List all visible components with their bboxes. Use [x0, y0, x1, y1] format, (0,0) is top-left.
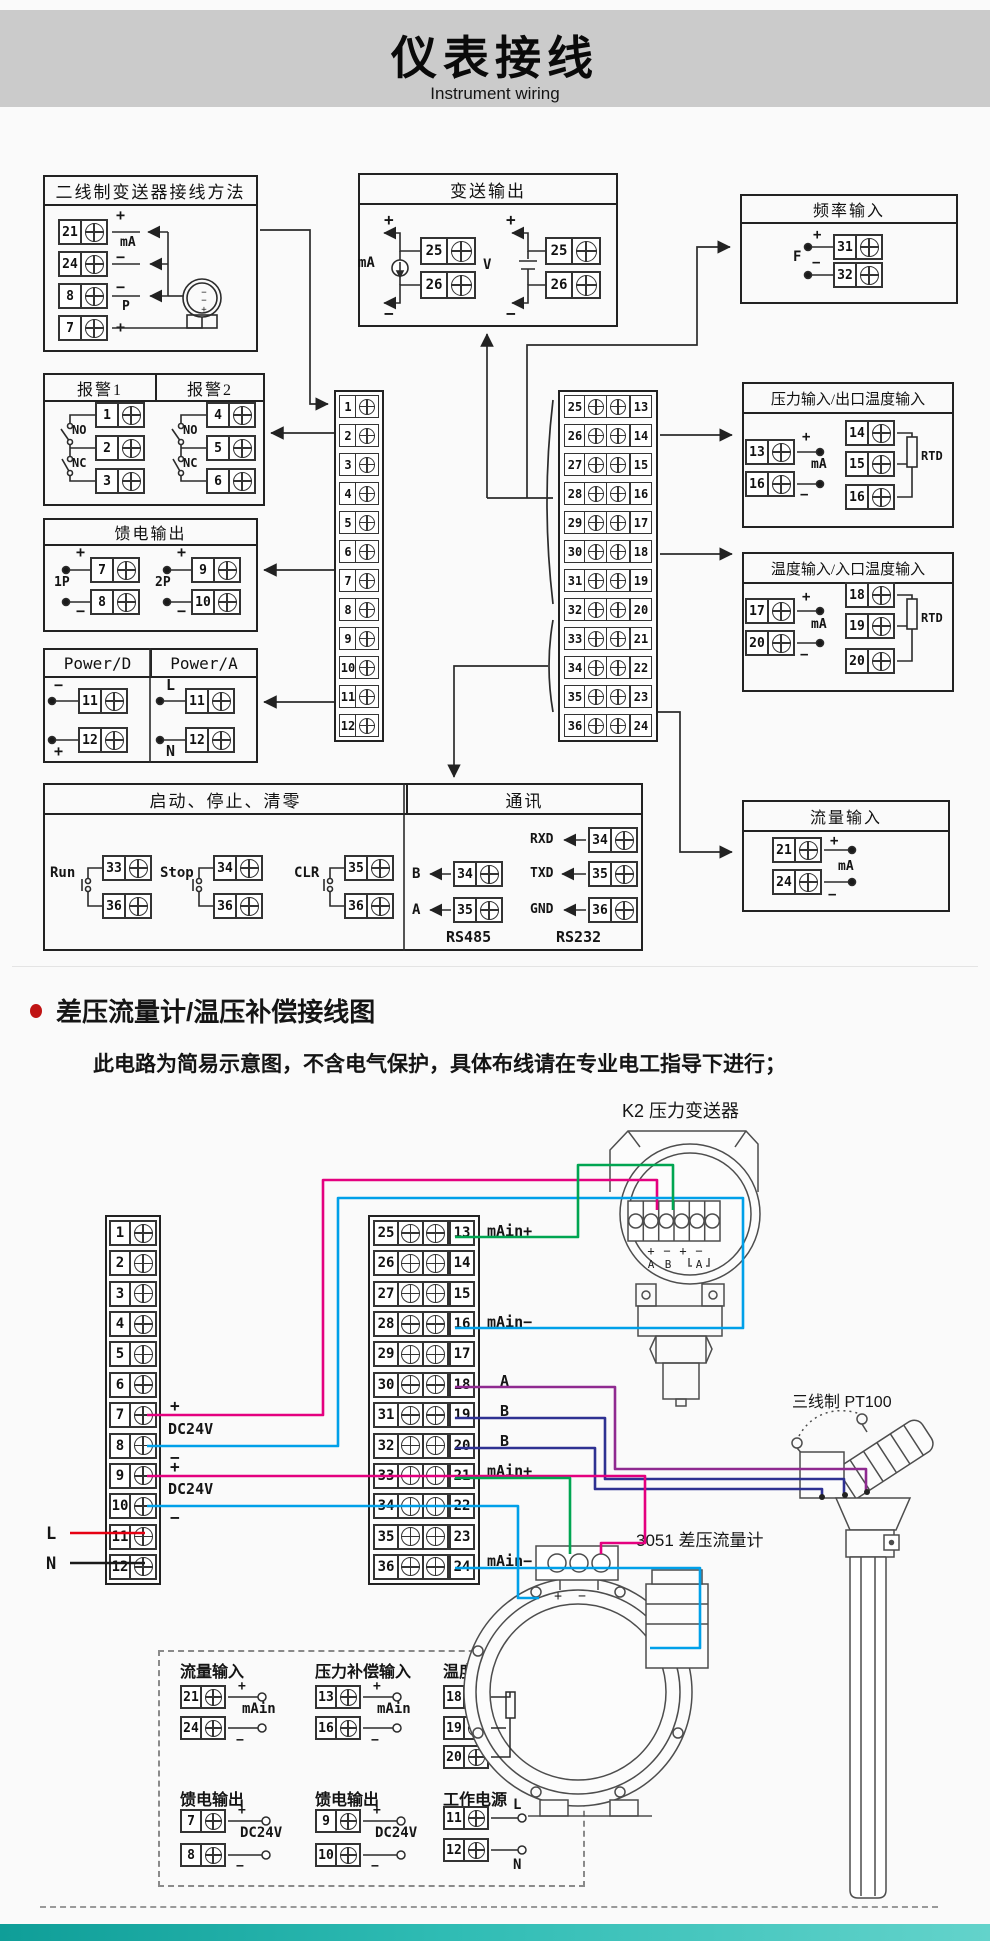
screw-terminal-icon: [200, 1809, 226, 1833]
screw-terminal-icon: [610, 897, 638, 923]
screw-terminal-icon: [767, 630, 795, 656]
terminal: 26: [545, 271, 601, 299]
box-title: 压力输入/出口温度输入: [744, 384, 952, 414]
screw-terminal-icon: [422, 1493, 449, 1519]
terminal-row: 3220: [562, 598, 654, 621]
label-plus: +: [802, 590, 810, 604]
terminal-row: 3523: [372, 1524, 476, 1550]
screw-terminal-icon: [355, 627, 379, 650]
terminal-row: 2917: [372, 1341, 476, 1367]
terminal: 9: [191, 557, 241, 583]
screw-terminal-icon: [335, 1843, 361, 1867]
screw-terminal-icon: [355, 540, 379, 563]
screw-terminal-icon: [606, 656, 630, 679]
group-title-feed2: 馈电输出: [315, 1786, 379, 1810]
terminal: 21: [772, 837, 822, 863]
screw-terminal-icon: [422, 1220, 449, 1246]
terminal-row: 5: [109, 1341, 157, 1367]
terminal-number: 29: [373, 1341, 399, 1367]
terminal-row: 8: [338, 598, 380, 621]
terminal: 4: [206, 402, 256, 428]
label-minus: −: [828, 888, 836, 902]
terminal-row: 2513: [562, 395, 654, 418]
screw-terminal-icon: [355, 685, 379, 708]
terminal: 11: [78, 688, 128, 714]
terminal-row: 3422: [372, 1493, 476, 1519]
terminal-row: 9: [338, 627, 380, 650]
terminal: 18: [845, 582, 895, 608]
screw-terminal-icon: [463, 1838, 489, 1862]
screw-terminal-icon: [397, 1372, 424, 1398]
label-n: N: [513, 1858, 521, 1872]
terminal: 12: [78, 727, 128, 753]
label-minus: −: [812, 256, 820, 270]
screw-terminal-icon: [422, 1524, 449, 1550]
label-minus: −: [170, 1510, 180, 1526]
terminal: 31: [833, 234, 883, 260]
terminal-number: 15: [449, 1281, 475, 1307]
label-plus: +: [76, 545, 85, 560]
terminal-number: 33: [564, 627, 586, 650]
terminal: 17: [745, 598, 795, 624]
group-title-feed1: 馈电输出: [180, 1786, 244, 1810]
label-ma: mA: [811, 618, 827, 631]
screw-terminal-icon: [463, 1806, 489, 1830]
label-p: P: [122, 300, 130, 313]
screw-terminal-icon: [80, 219, 108, 245]
terminal: 15: [845, 451, 895, 477]
terminal: 12: [185, 727, 235, 753]
terminal-number: 3: [109, 1281, 131, 1307]
terminal-number: 23: [449, 1524, 475, 1550]
screw-terminal-icon: [606, 598, 630, 621]
screw-terminal-icon: [606, 627, 630, 650]
label-rtd: RTD: [921, 612, 943, 624]
screw-terminal-icon: [112, 557, 140, 583]
screw-terminal-icon: [335, 1809, 361, 1833]
screw-terminal-icon: [794, 869, 822, 895]
screw-terminal-icon: [129, 1341, 157, 1367]
screw-terminal-icon: [397, 1250, 424, 1276]
label-main-plus: mAin+: [487, 1224, 532, 1239]
terminal-number: 35: [373, 1524, 399, 1550]
screw-terminal-icon: [584, 482, 608, 505]
terminal: 16: [315, 1716, 361, 1740]
screw-terminal-icon: [355, 598, 379, 621]
screw-terminal-icon: [606, 453, 630, 476]
terminal-number: 4: [109, 1311, 131, 1337]
terminal-number: 28: [373, 1311, 399, 1337]
label-plus: +: [116, 208, 125, 223]
box-title-power-d: Power/D: [45, 650, 150, 678]
terminal-number: 26: [564, 424, 586, 447]
terminal: 35: [453, 897, 503, 923]
label-minus: −: [116, 280, 125, 295]
screw-terminal-icon: [867, 420, 895, 446]
screw-terminal-icon: [213, 589, 241, 615]
box-title-alarm2: 报警2: [155, 375, 263, 402]
box-title: 温度输入/入口温度输入: [744, 554, 952, 584]
screw-terminal-icon: [584, 569, 608, 592]
terminal-number: 7: [109, 1402, 131, 1428]
screw-terminal-icon: [397, 1433, 424, 1459]
screw-terminal-icon: [117, 402, 145, 428]
screw-terminal-icon: [571, 271, 601, 299]
terminal-row: 12: [338, 714, 380, 737]
terminal-row: 2614: [562, 424, 654, 447]
screw-terminal-icon: [584, 714, 608, 737]
box-title-comm: 通讯: [406, 785, 641, 815]
screw-terminal-icon: [355, 482, 379, 505]
terminal: 7: [180, 1809, 226, 1833]
terminal: 21: [180, 1685, 226, 1709]
terminal-number: 22: [449, 1493, 475, 1519]
terminal-row: 3321: [562, 627, 654, 650]
terminal-number: 28: [564, 482, 586, 505]
screw-terminal-icon: [129, 1311, 157, 1337]
screw-terminal-icon: [606, 685, 630, 708]
terminal: 20: [745, 630, 795, 656]
screw-terminal-icon: [422, 1341, 449, 1367]
terminal-row: 7: [338, 569, 380, 592]
terminal: 32: [833, 262, 883, 288]
label-minus: −: [76, 604, 85, 619]
terminal-row: 3624: [562, 714, 654, 737]
footer-bar: [0, 1924, 990, 1941]
screw-terminal-icon: [235, 893, 263, 919]
screw-terminal-icon: [207, 688, 235, 714]
screw-terminal-icon: [422, 1402, 449, 1428]
label-n: N: [166, 744, 175, 759]
screw-terminal-icon: [100, 688, 128, 714]
terminal-number: 35: [564, 685, 586, 708]
wire-pt100-b1: [455, 1418, 844, 1493]
label-3051-flowmeter: 3051 差压流量计: [636, 1532, 764, 1549]
screw-terminal-icon: [867, 582, 895, 608]
screw-terminal-icon: [606, 540, 630, 563]
terminal-row: 2816: [562, 482, 654, 505]
group-title-flow: 流量输入: [180, 1658, 244, 1682]
terminal-number: 8: [109, 1433, 131, 1459]
label-plus: +: [384, 212, 394, 228]
screw-terminal-icon: [867, 613, 895, 639]
screw-terminal-icon: [366, 855, 394, 881]
terminal-number: 17: [630, 511, 652, 534]
label-minus: −: [54, 678, 63, 693]
screw-terminal-icon: [475, 861, 503, 887]
screw-terminal-icon: [235, 855, 263, 881]
terminal-row: 2715: [562, 453, 654, 476]
header-band: 仪表接线 Instrument wiring: [0, 10, 990, 107]
screw-terminal-icon: [335, 1685, 361, 1709]
label-rtd: RTD: [921, 450, 943, 462]
terminal-number: 34: [373, 1493, 399, 1519]
terminal-number: 17: [449, 1341, 475, 1367]
terminal-number: 13: [630, 395, 652, 418]
mark-minus: −: [578, 1589, 586, 1604]
terminal-row: 5: [338, 511, 380, 534]
label-main: mAin: [377, 1702, 411, 1716]
label-minus: −: [236, 1734, 244, 1747]
screw-terminal-icon: [129, 1554, 157, 1580]
terminal-number: 19: [449, 1402, 475, 1428]
terminal-number: 32: [373, 1433, 399, 1459]
screw-terminal-icon: [228, 468, 256, 494]
screw-terminal-icon: [463, 1745, 489, 1769]
screw-terminal-icon: [200, 1843, 226, 1867]
label-rtd: RTD: [518, 1712, 540, 1724]
screw-terminal-icon: [228, 402, 256, 428]
pt100-drawing: [792, 1411, 937, 1898]
terminal-number: 24: [449, 1554, 475, 1580]
terminal-row: 1: [338, 395, 380, 418]
terminal-number: 34: [564, 656, 586, 679]
terminal-row: 11: [109, 1524, 157, 1550]
terminal: 12: [443, 1838, 489, 1862]
terminal: 9: [315, 1809, 361, 1833]
terminal: 36: [213, 893, 263, 919]
box-title: 二线制变送器接线方法: [45, 177, 256, 206]
screw-terminal-icon: [794, 837, 822, 863]
screw-terminal-icon: [584, 511, 608, 534]
label-l: L: [513, 1798, 521, 1812]
box-title-runstop: 启动、停止、清零: [45, 785, 406, 815]
page: 仪表接线 Instrument wiring 二线制变送器接线方法 21 24 …: [0, 0, 990, 1941]
screw-terminal-icon: [355, 453, 379, 476]
screw-terminal-icon: [422, 1311, 449, 1337]
screw-terminal-icon: [463, 1685, 489, 1709]
screw-terminal-icon: [463, 1716, 489, 1740]
terminal-number: 21: [630, 627, 652, 650]
screw-terminal-icon: [867, 648, 895, 674]
terminal: 8: [180, 1843, 226, 1867]
terminal: 25: [545, 237, 601, 265]
terminal: 3: [95, 468, 145, 494]
label-plus: +: [802, 430, 810, 444]
label-plus: +: [170, 1398, 180, 1414]
label-ma: mA: [358, 256, 375, 270]
screw-terminal-icon: [80, 283, 108, 309]
terminal-number: 29: [564, 511, 586, 534]
flowmeter-terminal-marks: + −: [554, 1589, 586, 1604]
label-main-plus: mAin+: [487, 1464, 532, 1479]
terminal: 6: [206, 468, 256, 494]
label-minus: −: [800, 488, 808, 502]
label-clr: CLR: [294, 866, 319, 880]
terminal-row: 3422: [562, 656, 654, 679]
terminal-row: 3321: [372, 1463, 476, 1489]
screw-terminal-icon: [584, 395, 608, 418]
terminal-row: 3523: [562, 685, 654, 708]
label-v: V: [483, 258, 491, 272]
page-title: 仪表接线: [0, 10, 990, 88]
terminal-number: 14: [449, 1250, 475, 1276]
terminal-number: 14: [630, 424, 652, 447]
terminal-row: 9: [109, 1463, 157, 1489]
screw-terminal-icon: [129, 1372, 157, 1398]
terminal-number: 21: [449, 1463, 475, 1489]
screw-terminal-icon: [584, 627, 608, 650]
screw-terminal-icon: [446, 237, 476, 265]
screw-terminal-icon: [397, 1311, 424, 1337]
screw-terminal-icon: [606, 714, 630, 737]
terminal: 2: [95, 435, 145, 461]
screw-terminal-icon: [355, 656, 379, 679]
terminal-row: 2513: [372, 1220, 476, 1246]
terminal: 35: [344, 855, 394, 881]
label-plus: +: [373, 1804, 381, 1817]
terminal: 20: [845, 648, 895, 674]
label-plus: +: [506, 212, 516, 228]
terminal-number: 16: [630, 482, 652, 505]
screw-terminal-icon: [366, 893, 394, 919]
label-gnd: GND: [530, 903, 553, 916]
box-title: 变送输出: [360, 175, 616, 205]
terminal-strip-left: 123456789101112: [334, 390, 384, 742]
terminal-number: 25: [373, 1220, 399, 1246]
label-minus: −: [371, 1734, 379, 1747]
label-minus: −: [506, 306, 516, 322]
terminal: 36: [102, 893, 152, 919]
screw-terminal-icon: [397, 1402, 424, 1428]
screw-terminal-icon: [571, 237, 601, 265]
terminal: 7: [58, 315, 108, 341]
screw-terminal-icon: [129, 1402, 157, 1428]
terminal: 24: [58, 251, 108, 277]
screw-terminal-icon: [867, 451, 895, 477]
terminal-number: 27: [373, 1281, 399, 1307]
terminal-row: 3: [338, 453, 380, 476]
terminal-number: 27: [564, 453, 586, 476]
screw-terminal-icon: [355, 511, 379, 534]
terminal-number: 11: [109, 1524, 131, 1550]
pt100-wire-dots: [819, 1489, 870, 1500]
terminal-row: 3220: [372, 1433, 476, 1459]
label-dc24v: DC24V: [168, 1422, 213, 1437]
label-minus: −: [384, 306, 394, 322]
screw-terminal-icon: [422, 1463, 449, 1489]
label-k2-transmitter: K2 压力变送器: [622, 1102, 739, 1120]
terminal: 8: [58, 283, 108, 309]
terminal-number: 13: [449, 1220, 475, 1246]
label-a: A: [500, 1374, 509, 1389]
label-plus: +: [830, 834, 838, 848]
label-plus: +: [170, 1459, 180, 1475]
screw-terminal-icon: [397, 1524, 424, 1550]
group-title-pressure-comp: 压力补偿输入: [315, 1658, 411, 1682]
screw-terminal-icon: [124, 893, 152, 919]
terminal: 11: [185, 688, 235, 714]
label-n: N: [46, 1556, 56, 1573]
terminal-number: 32: [564, 598, 586, 621]
label-minus: −: [116, 250, 125, 265]
label-plus: +: [177, 545, 186, 560]
label-dc24v: DC24V: [240, 1826, 282, 1840]
terminal-number: 36: [373, 1554, 399, 1580]
mark-a: A: [648, 1258, 655, 1271]
mark-a: A: [696, 1258, 703, 1271]
terminal-strip-2-mid: 2513261427152816291730183119322033213422…: [368, 1215, 480, 1585]
terminal-number: 20: [630, 598, 652, 621]
terminal-row: 8: [109, 1433, 157, 1459]
screw-terminal-icon: [422, 1372, 449, 1398]
label-plus: +: [116, 320, 125, 335]
label-l: L: [46, 1526, 56, 1543]
screw-terminal-icon: [584, 598, 608, 621]
screw-terminal-icon: [606, 424, 630, 447]
terminal-number: 10: [109, 1493, 131, 1519]
label-nc: NC: [183, 457, 197, 469]
group-title-temp-comp: 温度补偿输入: [443, 1658, 539, 1682]
terminal-number: 2: [109, 1250, 131, 1276]
screw-terminal-icon: [129, 1433, 157, 1459]
terminal-row: 3018: [562, 540, 654, 563]
terminal-strip-right: 2513261427152816291730183119322033213422…: [558, 390, 658, 742]
label-main-minus: mAin−: [487, 1554, 532, 1569]
screw-terminal-icon: [129, 1493, 157, 1519]
terminal-number: 16: [449, 1311, 475, 1337]
screw-terminal-icon: [397, 1281, 424, 1307]
screw-terminal-icon: [207, 727, 235, 753]
terminal-number: 18: [449, 1372, 475, 1398]
terminal: 19: [443, 1716, 489, 1740]
terminal-row: 2715: [372, 1281, 476, 1307]
terminal-row: 2: [338, 424, 380, 447]
label-dc24v: DC24V: [375, 1826, 417, 1840]
screw-terminal-icon: [475, 897, 503, 923]
label-b: B: [500, 1434, 509, 1449]
terminal: 21: [58, 219, 108, 245]
terminal: 24: [772, 869, 822, 895]
screw-terminal-icon: [606, 511, 630, 534]
screw-terminal-icon: [129, 1524, 157, 1550]
box-title-alarm1: 报警1: [45, 375, 155, 402]
terminal-number: 20: [449, 1433, 475, 1459]
terminal-number: 5: [109, 1341, 131, 1367]
screw-terminal-icon: [767, 439, 795, 465]
terminal-number: 31: [564, 569, 586, 592]
label-main: mAin: [242, 1702, 276, 1716]
mark-b: B: [665, 1258, 672, 1271]
label-2p: 2P: [155, 576, 171, 589]
terminal: 10: [315, 1843, 361, 1867]
label-no: NO: [72, 424, 86, 436]
screw-terminal-icon: [767, 471, 795, 497]
screw-terminal-icon: [200, 1716, 226, 1740]
terminal-row: 1: [109, 1220, 157, 1246]
terminal-row: 6: [338, 540, 380, 563]
terminal-row: 7: [109, 1402, 157, 1428]
screw-terminal-icon: [610, 827, 638, 853]
terminal: 20: [443, 1745, 489, 1769]
screw-terminal-icon: [335, 1716, 361, 1740]
screw-terminal-icon: [355, 569, 379, 592]
screw-terminal-icon: [129, 1220, 157, 1246]
label-rs232: RS232: [556, 930, 601, 945]
terminal-number: 31: [373, 1402, 399, 1428]
terminal-row: 3624: [372, 1554, 476, 1580]
terminal-number: 21: [58, 219, 82, 245]
terminal-row: 2614: [372, 1250, 476, 1276]
terminal: 18: [443, 1685, 489, 1709]
terminal-row: 4: [338, 482, 380, 505]
terminal-row: 12: [109, 1554, 157, 1580]
screw-terminal-icon: [855, 262, 883, 288]
screw-terminal-icon: [117, 468, 145, 494]
terminal-row: 10: [109, 1493, 157, 1519]
page-subtitle: Instrument wiring: [0, 84, 990, 104]
label-b: B: [412, 867, 420, 881]
